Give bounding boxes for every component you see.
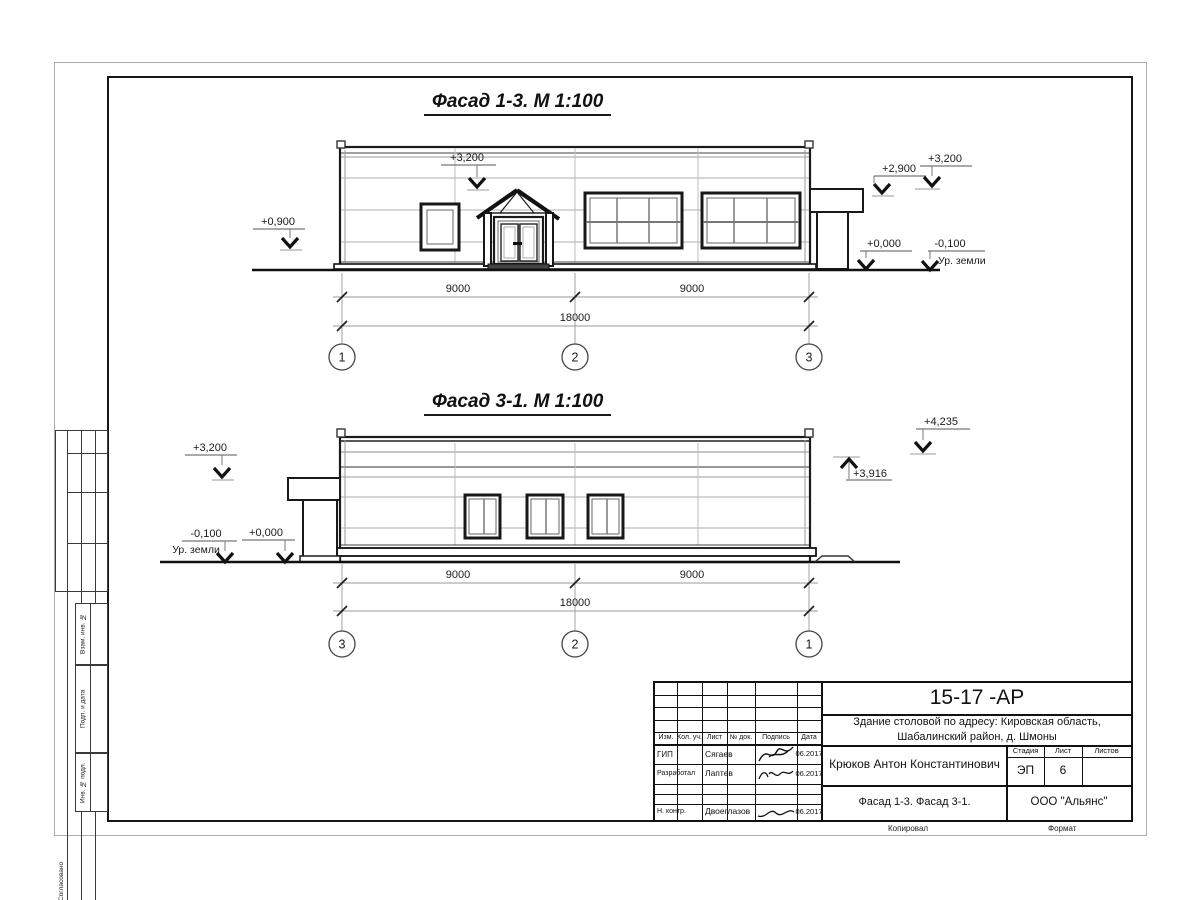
door-handle	[513, 242, 522, 245]
margin-cell-vzam: Взам. инв. №	[75, 603, 108, 665]
vzam-label: Взам. инв. №	[76, 604, 90, 664]
mark-zero: +0,000	[867, 238, 901, 250]
mark-parapet: +3,200	[928, 153, 962, 165]
facade13-axes: 1 2 3	[329, 344, 822, 370]
col-doc: № док.	[727, 732, 755, 744]
facade31-window-3	[588, 495, 623, 538]
dim-9000-b: 9000	[680, 283, 704, 295]
mark-entrance-top: +3,200	[450, 152, 484, 164]
mark-canopy: +2,900	[882, 163, 916, 175]
mark-parapet-right: +3,916	[853, 468, 887, 480]
signature-gip	[755, 741, 797, 767]
row-gip-role: ГИП	[655, 745, 702, 764]
row-gip-name: Сягаев	[703, 745, 755, 764]
approval-cell	[67, 453, 81, 492]
dim31-9000-a: 9000	[446, 569, 470, 581]
margin-label-cell: Инв. № подл.	[76, 754, 91, 811]
approval-cell	[81, 492, 95, 543]
podp-label: Подп. и дата	[76, 666, 90, 752]
facade31-building	[334, 429, 816, 562]
axis31-bubble-3: 3	[339, 638, 346, 652]
stage-label: Стадия	[1007, 745, 1044, 757]
axis31-bubble-2: 2	[572, 638, 579, 652]
row-ncontr-role: Н. контр.	[655, 804, 702, 820]
mark-zero31: +0,000	[249, 527, 283, 539]
facade13-right-canopy	[810, 189, 863, 269]
row-dev-date: 06.2017	[797, 764, 821, 784]
row-dev-role: Разработал	[655, 764, 702, 784]
approval-cell	[81, 453, 95, 492]
project-line1: Здание столовой по адресу: Кировская обл…	[853, 715, 1101, 729]
approval-cell	[95, 453, 107, 492]
mark-ground: -0,100	[934, 238, 965, 250]
drawing-canvas: Фасад 1-3. М 1:100 Фасад 3-1. М 1:100	[0, 0, 1200, 900]
dim31-18000: 18000	[560, 597, 591, 609]
mark-ground-label: Ур. земли	[938, 255, 986, 267]
margin-label-cell: Подп. и дата	[76, 666, 91, 752]
sheet-no-value: 6	[1044, 757, 1082, 785]
facade13-large-window-1	[585, 193, 682, 248]
dim-9000-a: 9000	[446, 283, 470, 295]
facade-1-3: +0,900 +3,200 +2,900 +3,200	[252, 141, 986, 370]
approval-stamp-table: Согласовано	[55, 430, 108, 592]
kopiroval-label: Копировал	[888, 824, 928, 833]
col-izm: Изм.	[655, 732, 677, 744]
row-ncontr-name: Двоеглазов	[703, 804, 755, 820]
approval-cell	[95, 431, 107, 453]
approval-cell	[67, 492, 81, 543]
facade31-left-canopy	[288, 478, 340, 562]
mark-roof-top: +4,235	[924, 416, 958, 428]
margin-blank-cell	[91, 604, 107, 664]
row-ncontr-date: 06.2017	[797, 804, 821, 820]
col-kol: Кол. уч.	[677, 732, 702, 744]
approval-cell	[95, 492, 107, 543]
inv-label: Инв. № подл.	[76, 754, 90, 811]
person-name: Крюков Антон Константинович	[823, 745, 1006, 785]
facade13-dimensions: 9000 9000 18000	[333, 273, 818, 344]
facade31-window-2	[527, 495, 563, 538]
approval-label: Согласовано	[56, 431, 67, 900]
facade-3-1: +3,200 -0,100 Ур. земли +0,000 +4,235	[160, 416, 970, 657]
project-line2: Шабалинский район, д. Шмоны	[897, 730, 1057, 744]
signature-developer	[755, 766, 797, 784]
facade13-small-window	[421, 204, 459, 250]
sheets-total-label: Листов	[1082, 745, 1131, 757]
company-name: ООО "Альянс"	[1007, 785, 1131, 820]
mark-parapet-left: +3,200	[193, 442, 227, 454]
margin-label-cell: Взам. инв. №	[76, 604, 91, 664]
sheet-no-label: Лист	[1044, 745, 1082, 757]
margin-blank-cell	[91, 666, 107, 752]
mark-sill: +0,900	[261, 216, 295, 228]
format-label: Формат	[1048, 824, 1076, 833]
approval-label-cell: Согласовано	[56, 431, 67, 900]
axis-bubble-1: 1	[339, 351, 346, 365]
margin-blank-cell	[91, 754, 107, 811]
sheet-name: Фасад 1-3. Фасад 3-1.	[823, 785, 1006, 820]
facade31-dimensions: 9000 9000 18000	[333, 564, 818, 631]
dim31-9000-b: 9000	[680, 569, 704, 581]
col-list: Лист	[702, 732, 727, 744]
axis-bubble-3: 3	[806, 351, 813, 365]
mark-ground-label31: Ур. земли	[172, 544, 220, 556]
sheets-total-value	[1082, 757, 1131, 785]
margin-cell-podp: Подп. и дата	[75, 665, 108, 753]
approval-cell	[67, 431, 81, 453]
approval-cell	[81, 431, 95, 453]
axis-bubble-2: 2	[572, 351, 579, 365]
col-date: Дата	[797, 732, 821, 744]
row-gip-date: 06.2017	[797, 745, 821, 764]
axis31-bubble-1: 1	[806, 638, 813, 652]
margin-cell-inv: Инв. № подл.	[75, 753, 108, 812]
facade31-axes: 3 2 1	[329, 631, 822, 657]
facade13-large-window-2	[702, 193, 800, 248]
mark-ground31: -0,100	[190, 528, 221, 540]
signature-ncontr	[755, 804, 797, 820]
project-name: Здание столовой по адресу: Кировская обл…	[823, 714, 1131, 745]
doc-code: 15-17 -АР	[823, 683, 1131, 714]
dim-18000: 18000	[560, 312, 591, 324]
stage-value: ЭП	[1007, 757, 1044, 785]
row-dev-name: Лаптев	[703, 764, 755, 784]
title-block: Изм. Кол. уч. Лист № док. Подпись Дата Г…	[653, 681, 1133, 822]
facade31-window-1	[465, 495, 500, 538]
